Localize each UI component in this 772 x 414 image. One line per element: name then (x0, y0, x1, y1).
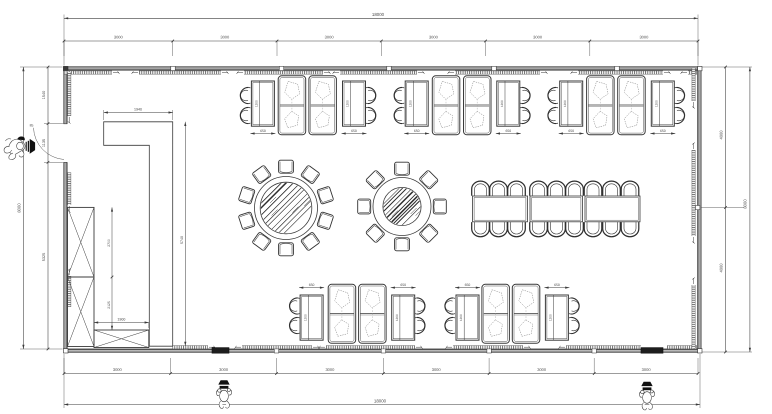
svg-text:3000: 3000 (325, 367, 335, 372)
svg-text:3000: 3000 (537, 367, 547, 372)
svg-text:5740: 5740 (180, 236, 184, 244)
svg-text:5325: 5325 (42, 253, 46, 261)
svg-text:650: 650 (309, 283, 315, 287)
svg-text:3000: 3000 (114, 35, 124, 40)
svg-text:1135: 1135 (42, 139, 46, 147)
svg-text:3000: 3000 (429, 35, 439, 40)
svg-text:650: 650 (351, 129, 357, 133)
svg-text:650: 650 (465, 283, 471, 287)
svg-text:3000: 3000 (642, 367, 652, 372)
svg-text:650: 650 (660, 129, 666, 133)
svg-text:18000: 18000 (374, 398, 387, 403)
svg-text:650: 650 (400, 283, 406, 287)
svg-text:18000: 18000 (372, 12, 385, 17)
svg-text:4000: 4000 (719, 130, 724, 140)
svg-text:650: 650 (568, 129, 574, 133)
svg-text:8000: 8000 (743, 199, 748, 209)
svg-text:3000: 3000 (533, 35, 543, 40)
svg-text:1900: 1900 (117, 317, 125, 321)
svg-text:650: 650 (414, 129, 420, 133)
svg-text:3000: 3000 (639, 35, 649, 40)
svg-text:3000: 3000 (325, 35, 335, 40)
svg-text:1940: 1940 (134, 107, 142, 111)
svg-text:2125: 2125 (107, 301, 111, 309)
svg-text:650: 650 (260, 129, 266, 133)
svg-text:3000: 3000 (113, 367, 123, 372)
svg-text:1540: 1540 (42, 91, 46, 99)
svg-text:85: 85 (30, 124, 34, 128)
svg-text:650: 650 (505, 129, 511, 133)
svg-text:3000: 3000 (219, 367, 229, 372)
svg-text:2700: 2700 (107, 239, 111, 247)
svg-text:3000: 3000 (432, 367, 442, 372)
svg-text:650: 650 (554, 283, 560, 287)
svg-text:8000: 8000 (17, 203, 22, 213)
svg-text:4000: 4000 (719, 263, 724, 273)
svg-text:3000: 3000 (220, 35, 230, 40)
